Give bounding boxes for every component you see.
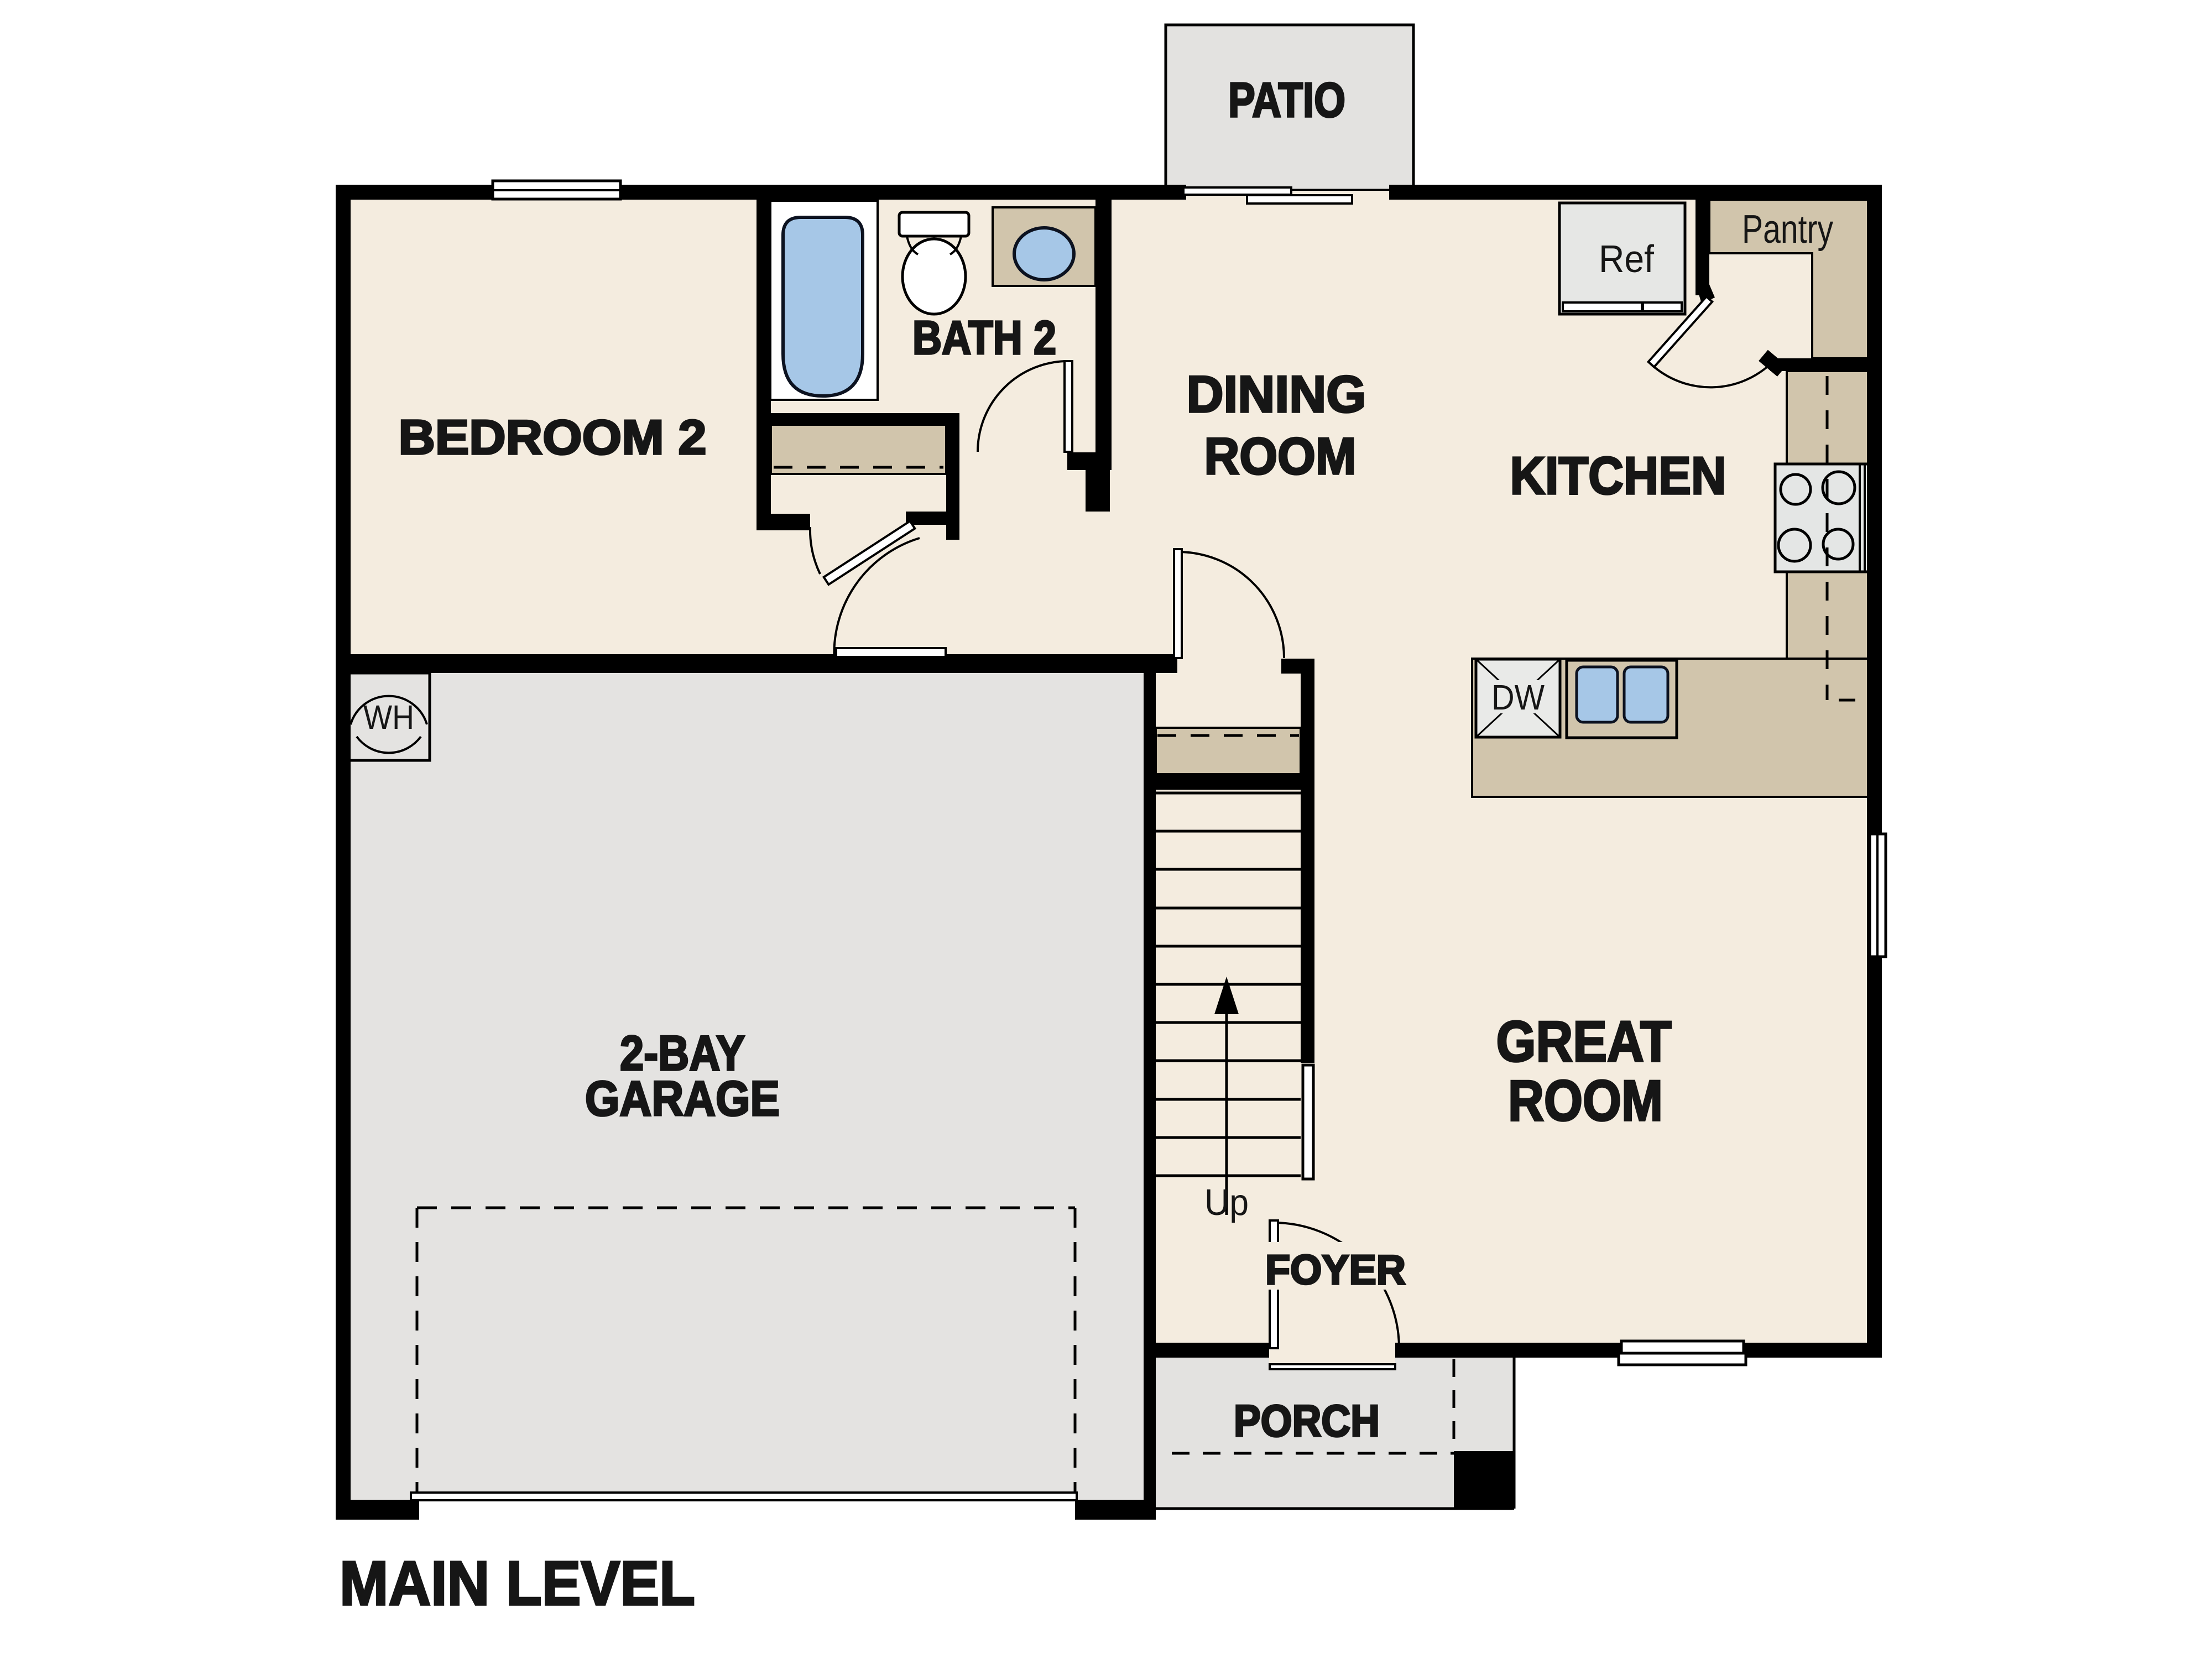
svg-text:KITCHEN: KITCHEN	[1510, 446, 1726, 505]
svg-text:GARAGE: GARAGE	[585, 1071, 780, 1126]
svg-text:Up: Up	[1204, 1182, 1249, 1223]
svg-text:DINING: DINING	[1187, 365, 1366, 423]
svg-text:Ref: Ref	[1599, 237, 1655, 280]
svg-text:DW: DW	[1491, 677, 1545, 717]
svg-text:BEDROOM 2: BEDROOM 2	[399, 410, 707, 465]
svg-text:WH: WH	[363, 698, 414, 736]
svg-text:PORCH: PORCH	[1234, 1396, 1380, 1446]
svg-text:ROOM: ROOM	[1508, 1069, 1663, 1133]
svg-text:ROOM: ROOM	[1204, 427, 1357, 485]
svg-text:MAIN LEVEL: MAIN LEVEL	[340, 1548, 695, 1618]
svg-text:Pantry: Pantry	[1742, 207, 1833, 252]
svg-text:PATIO: PATIO	[1228, 72, 1345, 127]
svg-text:GREAT: GREAT	[1496, 1010, 1672, 1074]
svg-text:FOYER: FOYER	[1265, 1246, 1406, 1293]
svg-text:BATH 2: BATH 2	[912, 312, 1056, 364]
